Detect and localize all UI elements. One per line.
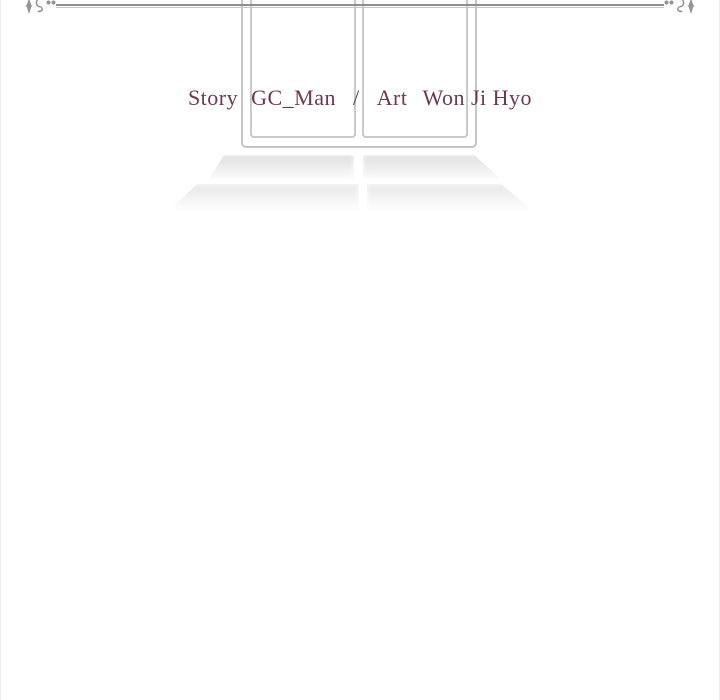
window-pane-left: [250, 0, 356, 138]
floor-light-shadow-row1-left: [205, 155, 354, 179]
floor-light-shadow-row2-left: [165, 184, 359, 211]
credits-line: Story GC_Man / Art Won Ji Hyo: [1, 86, 719, 110]
window-pane-right: [362, 0, 468, 138]
flourish-left-icon: [24, 0, 56, 15]
art-label: Art: [377, 86, 408, 110]
floor-light-shadow-row2-right: [367, 184, 537, 211]
art-author: Won Ji Hyo: [422, 86, 532, 110]
floor-light-shadow-row1-right: [363, 155, 505, 179]
webtoon-credits-page: Story GC_Man / Art Won Ji Hyo: [0, 0, 720, 700]
divider-line-main: [56, 4, 664, 6]
divider-line: [56, 4, 664, 8]
story-author: GC_Man: [251, 86, 336, 110]
flourish-right-icon: [664, 0, 696, 15]
credits-separator: /: [353, 86, 360, 110]
divider-line-shadow: [56, 7, 664, 8]
story-label: Story: [188, 86, 238, 110]
decorative-divider: [24, 0, 696, 15]
